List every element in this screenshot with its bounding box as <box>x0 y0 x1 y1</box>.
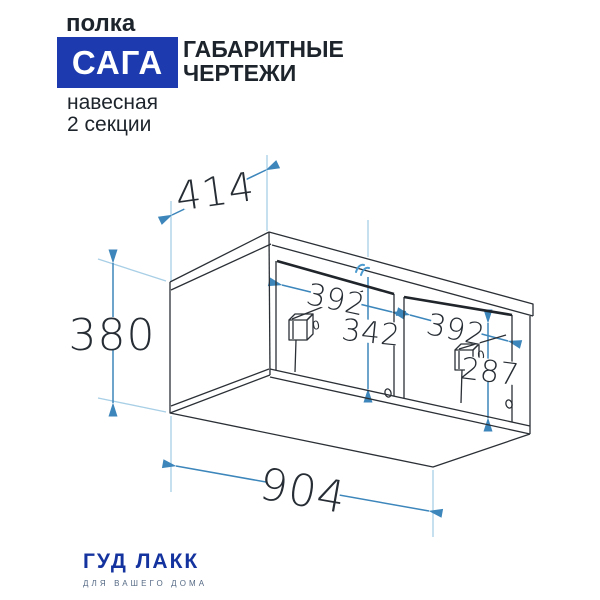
break-symbol <box>356 265 369 275</box>
dimensional-drawing: 0 0 414 380 904 <box>0 0 600 600</box>
page: полка САГА ГАБАРИТНЫЕ ЧЕРТЕЖИ навесная 2… <box>0 0 600 600</box>
dim-section1-height: 342 <box>340 313 402 354</box>
brand-tagline: ДЛЯ ВАШЕГО ДОМА <box>83 579 207 588</box>
dim-section2-width: 392 <box>423 307 488 353</box>
bracket-zero-label-left: 0 <box>311 318 321 333</box>
dimension-labels: 414 380 904 392 392 342 <box>69 164 522 524</box>
dim-height: 380 <box>69 310 156 361</box>
brand-logo: ГУД ЛАКК <box>83 550 207 574</box>
hanger-bracket-left <box>289 314 313 340</box>
brand-block: ГУД ЛАКК ДЛЯ ВАШЕГО ДОМА <box>83 550 207 588</box>
dim-depth: 414 <box>173 164 258 221</box>
dim-section2-height: 287 <box>459 351 522 393</box>
dim-width: 904 <box>256 459 351 524</box>
